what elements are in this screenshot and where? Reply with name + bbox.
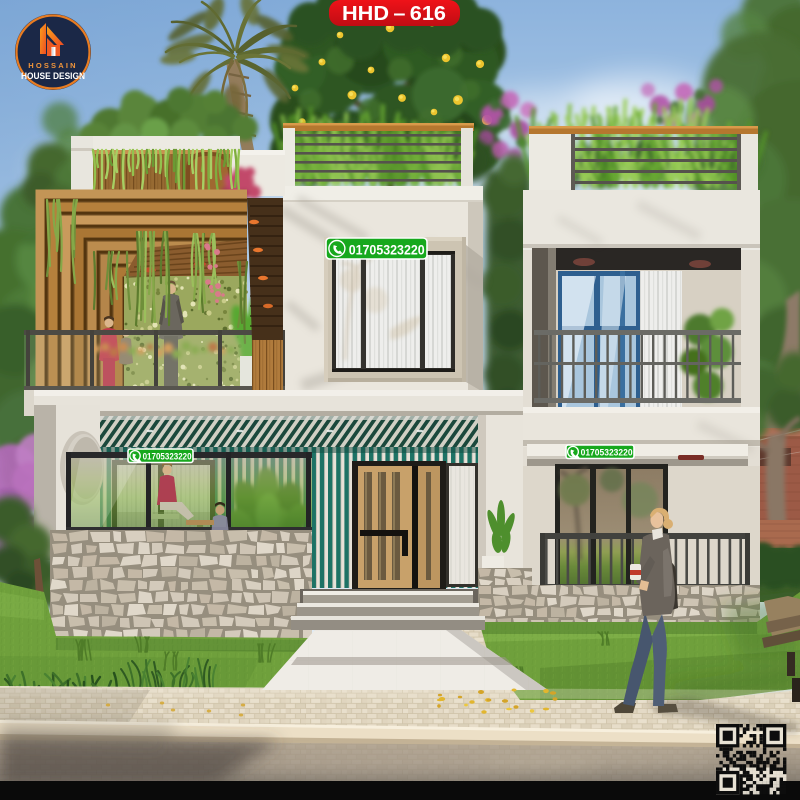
svg-text:HHD – 616: HHD – 616 [342,3,446,25]
svg-text:HOSSAIN: HOSSAIN [28,61,78,70]
svg-text:01705323220: 01705323220 [581,448,633,458]
svg-text:HOUSE DESIGN: HOUSE DESIGN [21,71,85,81]
svg-text:01705323220: 01705323220 [143,452,192,462]
svg-text:01705323220: 01705323220 [349,241,425,257]
